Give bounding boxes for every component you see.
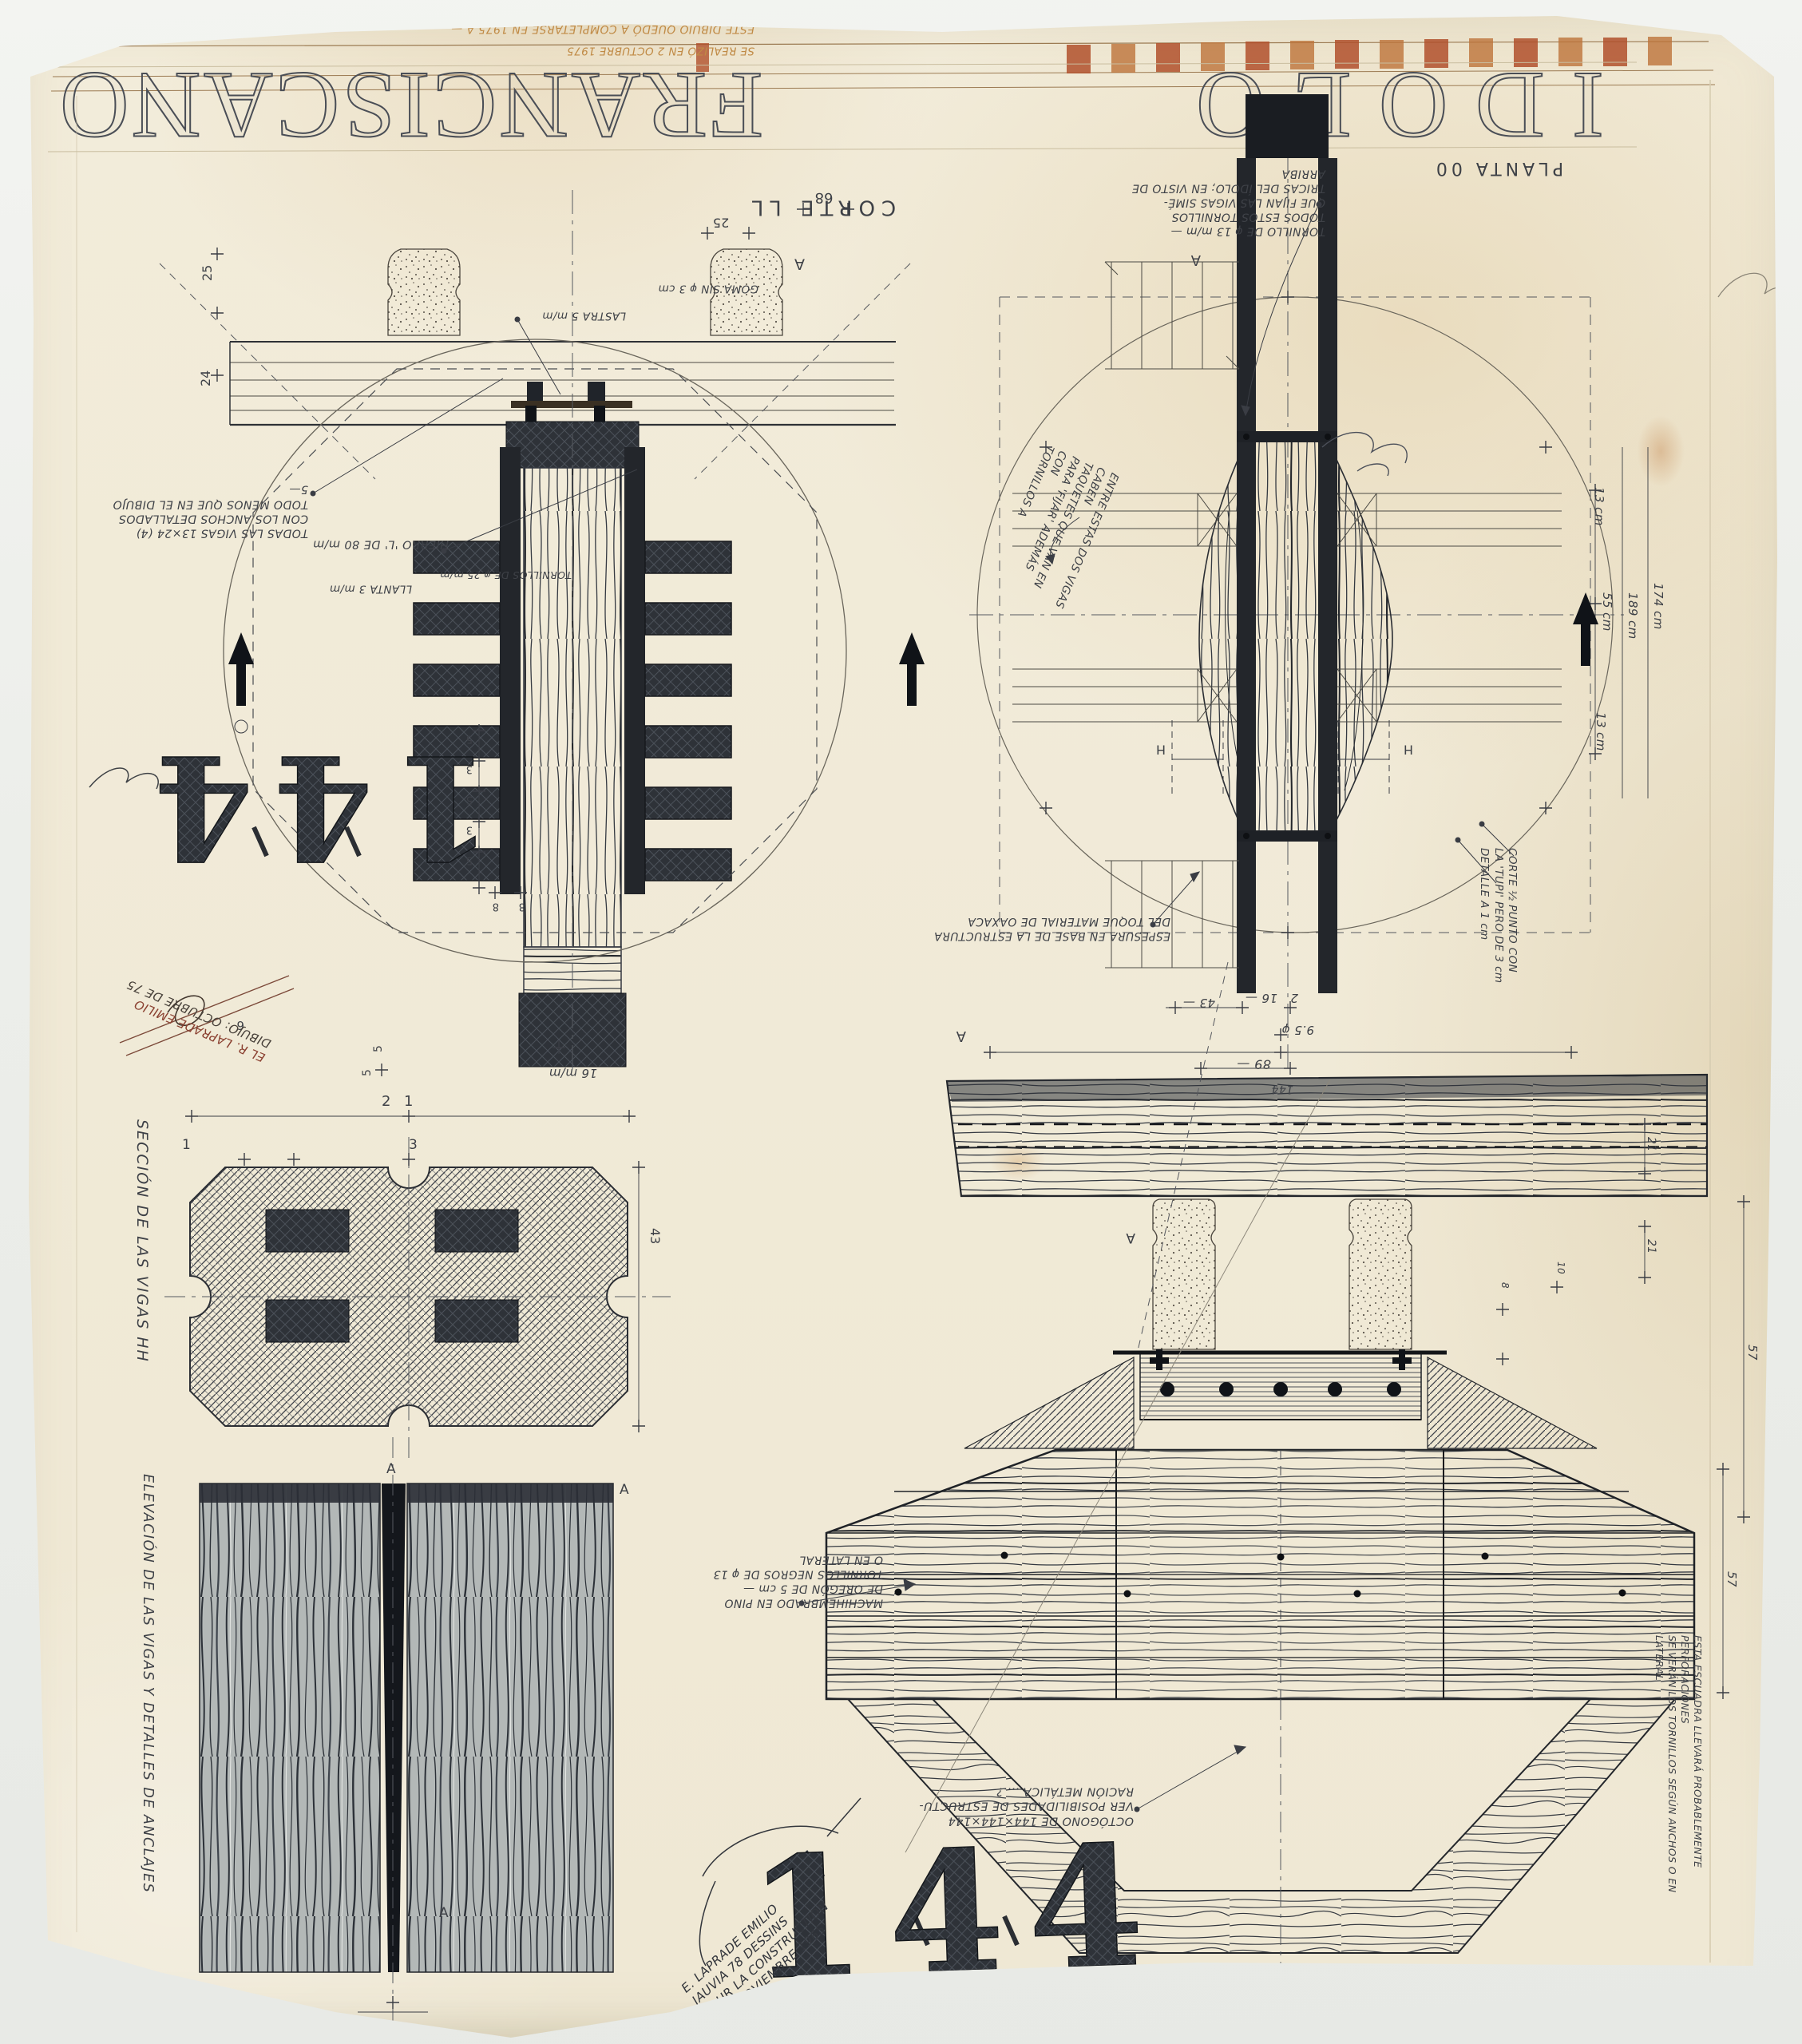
note-line: OCTÓGONO DE 144×144×144 <box>865 1813 1134 1828</box>
letter-a: A <box>620 1482 636 1499</box>
note-espesura: ESPESURA EN BASE DE LA ESTRUCTURA DEL TO… <box>931 913 1170 942</box>
letter-a: A <box>1183 251 1201 269</box>
note-line: QUE FIJAN LAS VIGAS SIMÉ- <box>1070 195 1325 209</box>
dim-8: 8 <box>485 899 499 913</box>
dim-16: 16 — <box>1236 990 1277 1005</box>
planta-label: PLANTA 00 <box>1426 156 1570 179</box>
dim-chain-5: 5 <box>458 792 473 806</box>
dim-10: 10 <box>1554 1262 1566 1274</box>
blueprint-sheet: IDOLO FRANCISCANO <box>0 0 1802 2044</box>
seccion-vigas-view <box>164 1064 671 1461</box>
dim-5: 5 <box>361 1069 375 1076</box>
note-line: TORNILLOS NEGROS DE φ 13 <box>685 1567 883 1581</box>
dim-55cm: 55 cm <box>1599 592 1614 632</box>
dim-13cm: 13 cm <box>1591 487 1606 526</box>
stone-post <box>1349 1199 1412 1349</box>
note-lastra: LASTRA 5 m/m <box>517 308 626 322</box>
letter-a: A <box>949 1027 966 1045</box>
dim-43: 43 <box>647 1228 663 1244</box>
note-tornillo-13: TORNILLO DE φ 13 m/m — TODOS ESTOS TORNI… <box>1070 166 1325 238</box>
note-corte-medio: CORTE ½ PUNTO CON LA 'TUPI' PERO DE 3 cm… <box>1477 848 1519 1016</box>
photo-of-blueprint: IDOLO FRANCISCANO <box>0 0 1802 2044</box>
dim-2: 2 <box>382 1092 398 1111</box>
dim-8: 8 <box>511 899 525 913</box>
note-line: VER POSIBILIDADES DE ESTRUCTU- <box>865 1799 1134 1814</box>
dim-174cm: 174 cm <box>1650 583 1665 630</box>
dim-1: 1 <box>182 1137 198 1155</box>
note-line: DE OREGÓN DE 5 cm — <box>685 1581 883 1595</box>
letter-a: A <box>439 1905 455 1923</box>
stone-post <box>1153 1199 1215 1349</box>
dim-57: 57 <box>1745 1345 1760 1361</box>
wood-lens-plan <box>1199 441 1392 837</box>
elevacion-label: ELEVACIÓN DE LAS VIGAS Y DETALLES DE ANC… <box>139 1474 156 1893</box>
blueprint-drawing: IDOLO FRANCISCANO <box>0 0 1802 2044</box>
letter-a: A <box>1118 1228 1135 1246</box>
dim-chain-3: 3 <box>458 762 473 775</box>
north-arrow <box>228 632 254 706</box>
sheet-title: IDOLO FRANCISCANO <box>57 53 1604 159</box>
note-line: LA 'TUPI' PERO DE 3 cm <box>1491 848 1504 1016</box>
note-line: RACIÓN METÁLICA ....? <box>865 1784 1134 1799</box>
wood-panel-left <box>200 1483 380 1972</box>
panel-gap-slot <box>382 1483 406 1972</box>
note-hierro: HIERRO 'L' DE 80 m/m <box>284 537 449 552</box>
note-llanta: LLANTA 3 m/m <box>292 581 412 595</box>
dim-21: 21 <box>1643 1137 1657 1152</box>
north-arrow <box>899 632 925 706</box>
note-goma: GOMA SIN φ 3 cm <box>631 281 758 295</box>
note-line: CORTE ½ PUNTO CON <box>1505 848 1519 1016</box>
dim-8: 8 <box>1499 1282 1511 1289</box>
dim-89: 89 — <box>1214 1056 1271 1072</box>
dim-144-hand: 144 <box>1246 1081 1293 1095</box>
note-line: MACHIHEMBRADO EN PINO <box>685 1595 883 1610</box>
note-line: DEL TOQUE MATERIAL DE OAXACA <box>931 913 1170 928</box>
dim-1: 1 <box>404 1092 420 1111</box>
wood-panel-right <box>407 1483 613 1972</box>
dim-57: 57 <box>1724 1571 1739 1587</box>
note-line: ARRIBA <box>1070 166 1325 180</box>
dim-24-left: 24 <box>198 370 214 386</box>
note-line: ESTA ESCUADRA LLEVARÁ PROBABLEMENTE PERF… <box>1678 1635 1704 1939</box>
note-line: ESPESURA EN BASE DE LA ESTRUCTURA <box>931 928 1170 942</box>
dim-25-top: 25 <box>703 214 739 230</box>
dim-16mm: 16 m/m <box>530 1065 597 1080</box>
note-tornillos: TORNILLOS DE φ 25 m/m <box>436 568 572 581</box>
note-line: SE VERÁN LOS TORNILLOS SEGÚN ANCHOS O EN… <box>1653 1635 1678 1939</box>
letter-a: A <box>786 254 805 273</box>
svg-text:144: 144 <box>133 723 493 890</box>
title-word-franciscano: FRANCISCANO <box>57 53 763 159</box>
elevacion-vigas-view <box>200 1437 613 2022</box>
dim-21: 21 <box>1643 1239 1657 1254</box>
rail-right <box>1318 158 1337 993</box>
pencil-squiggle <box>1718 273 1788 305</box>
dim-chain-5: 5 <box>458 731 473 745</box>
letter-h: H <box>1148 741 1166 757</box>
letter-h: H <box>1396 741 1413 757</box>
ruler-note-2: SE REALIZÓ EN 2 OCTUBRE 1975 <box>507 43 754 57</box>
dim-3: 3 <box>409 1137 425 1155</box>
note-machihembrado: MACHIHEMBRADO EN PINO DE OREGÓN DE 5 cm … <box>685 1552 883 1610</box>
corte-ll-view <box>89 190 925 1074</box>
stencil-144-top: 144 <box>133 723 493 890</box>
letter-a: A <box>386 1461 402 1479</box>
dim-25-left: 25 <box>200 265 216 281</box>
note-line: TODAS LAS VIGAS 13×24 (4) <box>102 526 308 541</box>
note-octogono: OCTÓGONO DE 144×144×144 VER POSIBILIDADE… <box>865 1784 1134 1828</box>
ruler-note-1: ESTE DIBUJO QUEDÓ A COMPLETARSE EN 1975 … <box>435 21 754 35</box>
dim-68: 68 <box>800 188 848 207</box>
seccion-label: SECCIÓN DE LAS VIGAS HH <box>133 1119 152 1363</box>
rail-left <box>1237 158 1256 993</box>
note-escuadra: ESTA ESCUADRA LLEVARÁ PROBABLEMENTE PERF… <box>1653 1635 1704 1939</box>
note-line: TRICAS DEL ÍDOLO; EN VISTO DE <box>1070 180 1325 195</box>
dim-2: 2 <box>1277 990 1298 1005</box>
dim-13cm: 13 cm <box>1593 712 1608 751</box>
note-line: DETALLE A 1 cm <box>1477 848 1491 1016</box>
dim-chain-3: 3 <box>458 822 473 836</box>
dim-chain-5: 5 <box>458 853 473 866</box>
dim-189cm: 189 cm <box>1625 592 1640 640</box>
note-line: CON LOS ANCHOS DETALLADOS <box>102 511 308 525</box>
note-line: TODO MENOS QUE EN EL DIBUJO 5— <box>102 482 308 511</box>
note-line: TODOS ESTOS TORNILLOS <box>1070 209 1325 224</box>
note-line: O EN LATERAL <box>685 1552 883 1567</box>
dim-5: 5 <box>372 1045 386 1052</box>
note-line: TORNILLO DE φ 13 m/m — <box>1070 224 1325 238</box>
note-todas-las-vigas: TODAS LAS VIGAS 13×24 (4) CON LOS ANCHOS… <box>102 482 308 541</box>
dim-9-5: 9.5 φ <box>1258 1022 1314 1037</box>
dim-43: 43 — <box>1164 995 1215 1010</box>
